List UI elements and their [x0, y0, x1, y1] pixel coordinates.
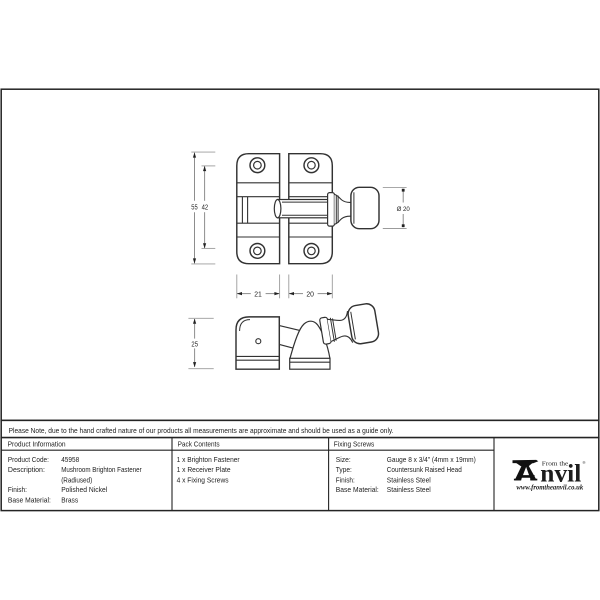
- svg-text:Fixing Screws: Fixing Screws: [334, 440, 375, 449]
- svg-text:21: 21: [254, 292, 262, 299]
- svg-text:Polished Nickel: Polished Nickel: [61, 485, 107, 494]
- svg-text:Product Code:: Product Code:: [8, 455, 49, 464]
- svg-text:4 x Fixing Screws: 4 x Fixing Screws: [177, 475, 229, 484]
- svg-text:42: 42: [202, 205, 209, 212]
- svg-text:Finish:: Finish:: [336, 475, 355, 484]
- svg-text:55: 55: [191, 205, 197, 212]
- svg-text:(Radiused): (Radiused): [61, 475, 92, 484]
- svg-text:Base Material:: Base Material:: [8, 495, 51, 504]
- svg-text:Description:: Description:: [8, 465, 45, 474]
- svg-text:®: ®: [582, 460, 586, 465]
- svg-text:Finish:: Finish:: [8, 485, 27, 494]
- svg-text:1 x Brighton Fastener: 1 x Brighton Fastener: [177, 455, 241, 464]
- svg-text:Countersunk Raised Head: Countersunk Raised Head: [387, 465, 462, 474]
- svg-text:Product Information: Product Information: [8, 440, 66, 449]
- svg-text:Ø 20: Ø 20: [397, 206, 411, 213]
- svg-text:Type:: Type:: [336, 465, 352, 474]
- svg-text:Stainless Steel: Stainless Steel: [387, 485, 431, 494]
- svg-text:Brass: Brass: [61, 495, 78, 504]
- svg-text:Pack Contents: Pack Contents: [178, 440, 220, 449]
- svg-text:25: 25: [191, 342, 198, 349]
- svg-text:Please Note, due to the hand c: Please Note, due to the hand crafted nat…: [9, 426, 394, 435]
- svg-text:Gauge 8 x 3/4" (4mm x 19mm): Gauge 8 x 3/4" (4mm x 19mm): [387, 455, 476, 464]
- svg-text:45958: 45958: [61, 455, 79, 464]
- svg-text:20: 20: [306, 292, 314, 299]
- svg-text:Stainless Steel: Stainless Steel: [387, 475, 431, 484]
- svg-text:1 x Receiver Plate: 1 x Receiver Plate: [177, 465, 231, 474]
- svg-text:Mushroom Brighton Fastener: Mushroom Brighton Fastener: [61, 465, 142, 474]
- svg-text:Size:: Size:: [336, 455, 351, 464]
- svg-text:Base Material:: Base Material:: [336, 485, 379, 494]
- svg-text:www.fromtheanvil.co.uk: www.fromtheanvil.co.uk: [516, 482, 583, 491]
